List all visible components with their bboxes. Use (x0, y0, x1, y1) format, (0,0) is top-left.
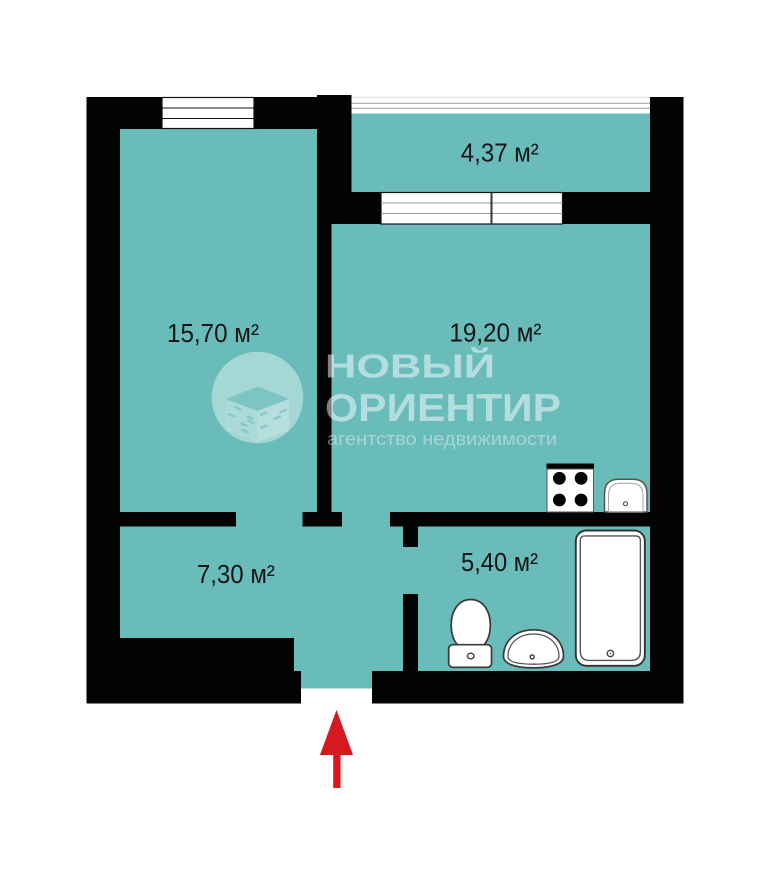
svg-text:ОРИЕНТИР: ОРИЕНТИР (325, 387, 561, 430)
svg-text:19,20 м²: 19,20 м² (449, 320, 541, 348)
svg-text:5,40 м²: 5,40 м² (461, 549, 538, 577)
svg-text:7,30 м²: 7,30 м² (197, 561, 275, 589)
svg-text:агентство недвижимости: агентство недвижимости (327, 429, 557, 449)
svg-text:4,37 м²: 4,37 м² (461, 140, 539, 168)
svg-text:НОВЫЙ: НОВЫЙ (325, 347, 495, 385)
svg-text:15,70 м²: 15,70 м² (167, 320, 259, 348)
